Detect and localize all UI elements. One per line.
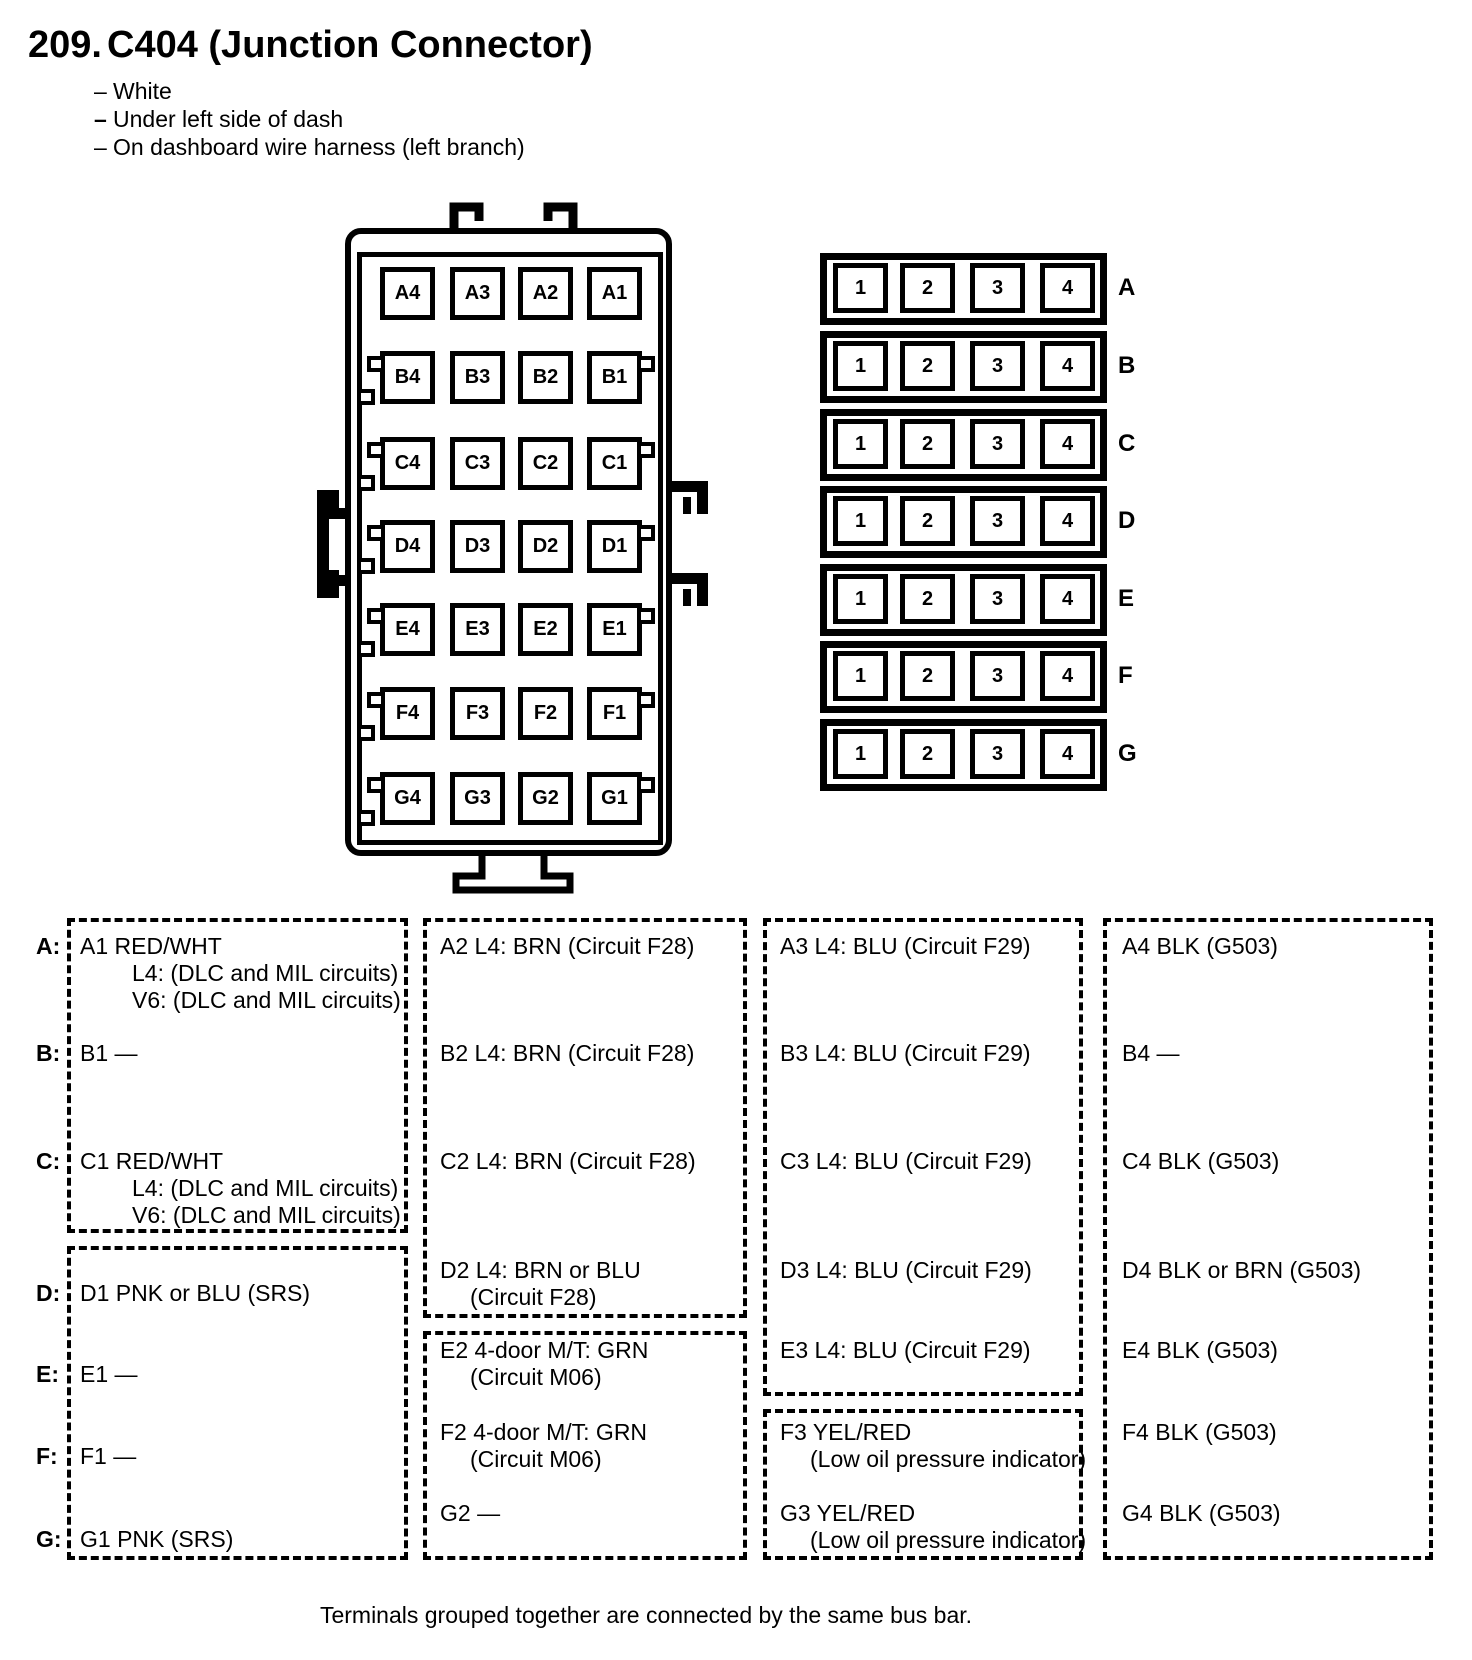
bus-bar-cell: 4 — [1040, 496, 1095, 546]
connector-cell-d2: D2 — [518, 520, 573, 573]
connector-cell-a4: A4 — [380, 267, 435, 320]
pin-line: B4 — — [1122, 1040, 1180, 1067]
pin-line: F3 YEL/RED — [780, 1419, 1086, 1446]
pin-line: A2 L4: BRN (Circuit F28) — [440, 933, 694, 960]
connector-key-notch — [367, 692, 381, 708]
top-mount-tab-icon — [454, 207, 573, 230]
pin-row-label: D: — [36, 1280, 60, 1307]
bus-bar-row-letter: B — [1118, 352, 1158, 380]
bus-bar-cell: 4 — [1040, 341, 1095, 391]
connector-cell-f1: F1 — [587, 687, 642, 740]
bus-bar-cell: 1 — [833, 263, 888, 313]
bus-bar-row-letter: G — [1118, 740, 1158, 768]
bus-bar-cell: 1 — [833, 651, 888, 701]
pin-line: A1 RED/WHT — [80, 933, 401, 960]
pin-line: L4: (DLC and MIL circuits) — [80, 1175, 401, 1202]
pin-line: (Circuit F28) — [440, 1284, 641, 1311]
pin-entry-a4: A4 BLK (G503) — [1122, 933, 1278, 960]
bus-bar-cell: 2 — [900, 419, 955, 469]
pin-line: B3 L4: BLU (Circuit F29) — [780, 1040, 1031, 1067]
pin-entry-a1: A1 RED/WHTL4: (DLC and MIL circuits)V6: … — [80, 933, 401, 1014]
connector-cell-a1: A1 — [587, 267, 642, 320]
pin-entry-g2: G2 — — [440, 1500, 500, 1527]
pin-line: C3 L4: BLU (Circuit F29) — [780, 1148, 1032, 1175]
pin-line: D1 PNK or BLU (SRS) — [80, 1280, 310, 1307]
bus-bar-cell: 4 — [1040, 574, 1095, 624]
bus-bar-cell: 2 — [900, 341, 955, 391]
connector-cell-e4: E4 — [380, 603, 435, 656]
pin-line: E2 4-door M/T: GRN — [440, 1337, 648, 1364]
bus-bar-cell: 2 — [900, 263, 955, 313]
pin-entry-e2: E2 4-door M/T: GRN(Circuit M06) — [440, 1337, 648, 1391]
bus-bar-cell: 2 — [900, 574, 955, 624]
bus-bar-row-letter: F — [1118, 662, 1158, 690]
connector-key-notch — [361, 810, 375, 826]
left-mount-bracket-icon — [317, 490, 346, 598]
connector-key-notch — [361, 475, 375, 491]
bus-bar-cell: 3 — [970, 574, 1025, 624]
pin-line: F2 4-door M/T: GRN — [440, 1419, 647, 1446]
connector-cell-g3: G3 — [450, 772, 505, 825]
pin-row-label: B: — [36, 1040, 60, 1067]
connector-cell-b3: B3 — [450, 351, 505, 404]
bus-bar-cell: 4 — [1040, 729, 1095, 779]
pin-entry-e4: E4 BLK (G503) — [1122, 1337, 1278, 1364]
pin-entry-e1: E1 — — [80, 1361, 138, 1388]
connector-cell-d4: D4 — [380, 520, 435, 573]
bus-bar-row-letter: A — [1118, 274, 1158, 302]
connector-cell-b1: B1 — [587, 351, 642, 404]
connector-key-notch — [641, 442, 655, 458]
pin-row-label: A: — [36, 933, 60, 960]
connector-cell-g2: G2 — [518, 772, 573, 825]
pin-line: G3 YEL/RED — [780, 1500, 1086, 1527]
connector-cell-a2: A2 — [518, 267, 573, 320]
connector-key-notch — [361, 725, 375, 741]
pin-line: E4 BLK (G503) — [1122, 1337, 1278, 1364]
bus-bar-cell: 3 — [970, 419, 1025, 469]
connector-cell-f2: F2 — [518, 687, 573, 740]
pin-line: E3 L4: BLU (Circuit F29) — [780, 1337, 1031, 1364]
connector-cell-e1: E1 — [587, 603, 642, 656]
pin-line: C2 L4: BRN (Circuit F28) — [440, 1148, 696, 1175]
pin-entry-g1: G1 PNK (SRS) — [80, 1526, 233, 1553]
pin-line: C1 RED/WHT — [80, 1148, 401, 1175]
bus-bar-cell: 1 — [833, 496, 888, 546]
pin-row-label: E: — [36, 1361, 59, 1388]
connector-key-notch — [367, 608, 381, 624]
pin-entry-g4: G4 BLK (G503) — [1122, 1500, 1281, 1527]
bus-bar-cell: 1 — [833, 574, 888, 624]
connector-key-notch — [641, 356, 655, 372]
connector-key-notch — [361, 558, 375, 574]
pin-entry-f3: F3 YEL/RED(Low oil pressure indicator) — [780, 1419, 1086, 1473]
pin-entry-f2: F2 4-door M/T: GRN(Circuit M06) — [440, 1419, 647, 1473]
pin-line: L4: (DLC and MIL circuits) — [80, 960, 401, 987]
connector-cell-f3: F3 — [450, 687, 505, 740]
connector-cell-d1: D1 — [587, 520, 642, 573]
bus-bar-cell: 3 — [970, 496, 1025, 546]
pin-line: B1 — — [80, 1040, 138, 1067]
connector-cell-b4: B4 — [380, 351, 435, 404]
pin-entry-c2: C2 L4: BRN (Circuit F28) — [440, 1148, 696, 1175]
connector-key-notch — [361, 641, 375, 657]
connector-cell-e3: E3 — [450, 603, 505, 656]
right-lock-hook-icon — [672, 481, 708, 606]
pin-line: C4 BLK (G503) — [1122, 1148, 1279, 1175]
pin-entry-a2: A2 L4: BRN (Circuit F28) — [440, 933, 694, 960]
bus-bar-cell: 3 — [970, 263, 1025, 313]
connector-key-notch — [641, 525, 655, 541]
connector-cell-c4: C4 — [380, 437, 435, 490]
pin-line: (Circuit M06) — [440, 1446, 647, 1473]
pin-line: F1 — — [80, 1443, 136, 1470]
bus-bar-cell: 3 — [970, 729, 1025, 779]
pin-entry-d1: D1 PNK or BLU (SRS) — [80, 1280, 310, 1307]
pin-entry-d4: D4 BLK or BRN (G503) — [1122, 1257, 1361, 1284]
connector-pinout-page: 209. C404 (Junction Connector) –White –U… — [0, 0, 1472, 1660]
bus-bar-cell: 2 — [900, 496, 955, 546]
pin-line: D2 L4: BRN or BLU — [440, 1257, 641, 1284]
bus-bar-row-letter: C — [1118, 430, 1158, 458]
connector-key-notch — [641, 777, 655, 793]
pin-entry-c3: C3 L4: BLU (Circuit F29) — [780, 1148, 1032, 1175]
pin-entry-b2: B2 L4: BRN (Circuit F28) — [440, 1040, 694, 1067]
pin-line: B2 L4: BRN (Circuit F28) — [440, 1040, 694, 1067]
pin-line: A3 L4: BLU (Circuit F29) — [780, 933, 1031, 960]
bus-bar-cell: 2 — [900, 651, 955, 701]
pin-line: V6: (DLC and MIL circuits) — [80, 1202, 401, 1229]
bottom-pedestal-tab-icon — [456, 854, 570, 890]
connector-key-notch — [641, 692, 655, 708]
footnote: Terminals grouped together are connected… — [0, 1602, 1292, 1629]
connector-key-notch — [367, 525, 381, 541]
pin-row-label: F: — [36, 1443, 58, 1470]
connector-key-notch — [367, 777, 381, 793]
bus-bar-cell: 1 — [833, 341, 888, 391]
pin-entry-f4: F4 BLK (G503) — [1122, 1419, 1277, 1446]
pin-entry-d3: D3 L4: BLU (Circuit F29) — [780, 1257, 1032, 1284]
pin-entry-b1: B1 — — [80, 1040, 138, 1067]
pin-line: (Low oil pressure indicator) — [780, 1527, 1086, 1554]
pin-entry-d2: D2 L4: BRN or BLU(Circuit F28) — [440, 1257, 641, 1311]
connector-cell-c1: C1 — [587, 437, 642, 490]
pin-line: E1 — — [80, 1361, 138, 1388]
connector-key-notch — [367, 356, 381, 372]
pin-entry-e3: E3 L4: BLU (Circuit F29) — [780, 1337, 1031, 1364]
bus-bar-cell: 4 — [1040, 419, 1095, 469]
bus-bar-row-letter: D — [1118, 507, 1158, 535]
connector-cell-e2: E2 — [518, 603, 573, 656]
pin-line: V6: (DLC and MIL circuits) — [80, 987, 401, 1014]
pin-line: G4 BLK (G503) — [1122, 1500, 1281, 1527]
connector-cell-a3: A3 — [450, 267, 505, 320]
connector-key-notch — [367, 442, 381, 458]
pin-line: (Circuit M06) — [440, 1364, 648, 1391]
bus-bar-cell: 1 — [833, 729, 888, 779]
pin-entry-f1: F1 — — [80, 1443, 136, 1470]
pin-line: A4 BLK (G503) — [1122, 933, 1278, 960]
connector-cell-f4: F4 — [380, 687, 435, 740]
connector-cell-c2: C2 — [518, 437, 573, 490]
bus-bar-cell: 4 — [1040, 651, 1095, 701]
pin-line: D4 BLK or BRN (G503) — [1122, 1257, 1361, 1284]
bus-bar-row-letter: E — [1118, 585, 1158, 613]
pin-line: (Low oil pressure indicator) — [780, 1446, 1086, 1473]
pin-line: F4 BLK (G503) — [1122, 1419, 1277, 1446]
pin-entry-b4: B4 — — [1122, 1040, 1180, 1067]
connector-key-notch — [361, 389, 375, 405]
pin-row-label: G: — [36, 1526, 62, 1553]
connector-cell-c3: C3 — [450, 437, 505, 490]
pin-entry-b3: B3 L4: BLU (Circuit F29) — [780, 1040, 1031, 1067]
connector-cell-b2: B2 — [518, 351, 573, 404]
connector-cell-g1: G1 — [587, 772, 642, 825]
pin-entry-c4: C4 BLK (G503) — [1122, 1148, 1279, 1175]
pin-entry-a3: A3 L4: BLU (Circuit F29) — [780, 933, 1031, 960]
pin-row-label: C: — [36, 1148, 60, 1175]
bus-bar-cell: 4 — [1040, 263, 1095, 313]
bus-bar-cell: 3 — [970, 341, 1025, 391]
bus-bar-cell: 3 — [970, 651, 1025, 701]
bus-bar-cell: 1 — [833, 419, 888, 469]
connector-cell-d3: D3 — [450, 520, 505, 573]
bus-bar-cell: 2 — [900, 729, 955, 779]
pin-line: D3 L4: BLU (Circuit F29) — [780, 1257, 1032, 1284]
connector-cell-g4: G4 — [380, 772, 435, 825]
pin-line: G2 — — [440, 1500, 500, 1527]
bus-group-box-7 — [1103, 918, 1433, 1560]
connector-key-notch — [641, 608, 655, 624]
pin-line: G1 PNK (SRS) — [80, 1526, 233, 1553]
pin-entry-c1: C1 RED/WHTL4: (DLC and MIL circuits)V6: … — [80, 1148, 401, 1229]
pin-entry-g3: G3 YEL/RED(Low oil pressure indicator) — [780, 1500, 1086, 1554]
